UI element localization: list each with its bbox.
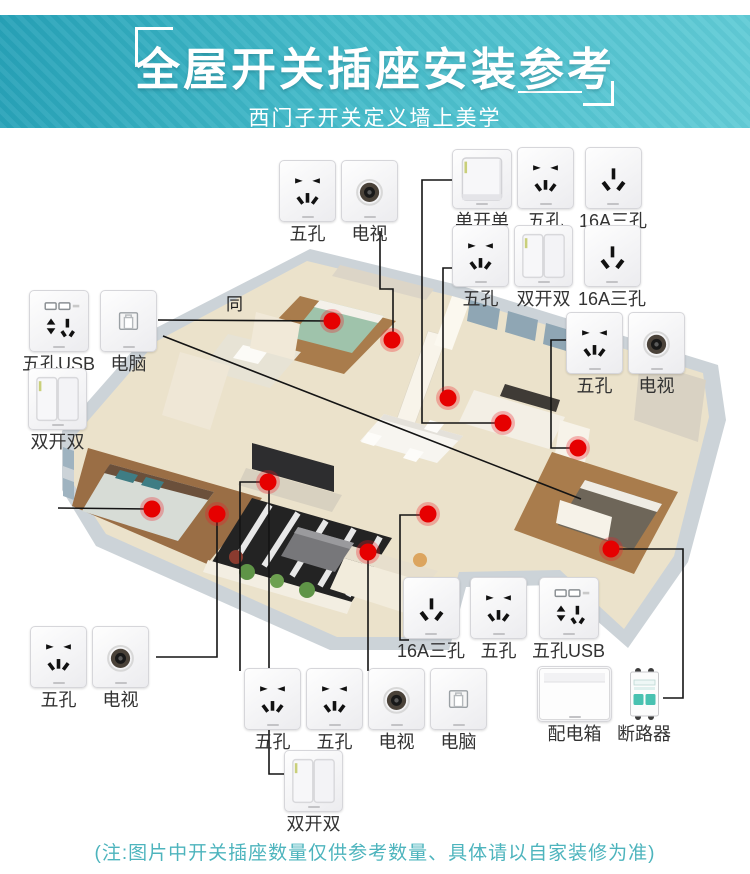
product-group-left-2: 双开双	[28, 368, 87, 452]
tv-product-image	[628, 312, 685, 374]
product-groups-layer: 五孔电视单开单五孔16A三孔五孔双开双16A三孔五孔电视五孔USB电脑双开双五孔…	[0, 0, 750, 874]
product-item: 电视	[341, 160, 398, 244]
double-switch-product-image	[284, 750, 343, 812]
product-item: 双开双	[28, 368, 87, 452]
product-item: 电脑	[430, 668, 487, 752]
product-group-top-left: 五孔电视	[279, 160, 398, 244]
product-item: 16A三孔	[397, 577, 465, 661]
five-hole-product-image	[30, 626, 87, 688]
product-label: 五孔	[577, 376, 613, 396]
three-hole-product-image	[403, 577, 460, 639]
product-item: 五孔	[517, 147, 574, 231]
product-label: 配电箱	[548, 724, 602, 744]
product-label: 16A三孔	[397, 641, 465, 661]
five-usb-product-image	[539, 577, 599, 639]
tv-product-image	[368, 668, 425, 730]
product-group-left-1: 五孔USB电脑	[22, 290, 157, 374]
product-group-top-right-1: 单开单五孔16A三孔	[452, 147, 647, 231]
product-item: 配电箱	[537, 666, 612, 744]
product-label: 电视	[379, 732, 415, 752]
single-switch-product-image	[452, 149, 512, 209]
infographic-page: 全屋开关插座安装参考 西门子开关定义墙上美学	[0, 0, 750, 874]
product-item: 五孔	[452, 225, 509, 309]
product-label: 五孔	[317, 732, 353, 752]
product-label: 五孔	[481, 641, 517, 661]
product-group-bottom-right: 配电箱断路器	[537, 666, 671, 744]
product-item: 电视	[628, 312, 685, 396]
product-item: 双开双	[284, 750, 343, 834]
tv-product-image	[92, 626, 149, 688]
product-label: 五孔USB	[532, 641, 605, 661]
dist-box-product-image	[537, 666, 612, 722]
double-switch-product-image	[28, 368, 87, 430]
product-label: 五孔	[255, 732, 291, 752]
computer-product-image	[430, 668, 487, 730]
product-label: 电脑	[111, 354, 147, 374]
product-item: 五孔	[279, 160, 336, 244]
footnote: (注:图片中开关插座数量仅供参考数量、具体请以自家装修为准)	[0, 838, 750, 865]
five-hole-product-image	[279, 160, 336, 222]
product-item: 双开双	[514, 225, 573, 309]
product-item: 五孔USB	[22, 290, 95, 374]
product-item: 五孔	[470, 577, 527, 661]
product-label: 电视	[352, 224, 388, 244]
product-item: 电视	[368, 668, 425, 752]
product-item: 16A三孔	[578, 225, 646, 309]
product-label: 双开双	[287, 814, 341, 834]
breaker-product-image	[629, 666, 660, 722]
five-hole-product-image	[306, 668, 363, 730]
product-label: 五孔	[41, 690, 77, 710]
product-label: 电视	[103, 690, 139, 710]
tv-product-image	[341, 160, 398, 222]
product-item: 断路器	[617, 666, 671, 744]
five-hole-product-image	[566, 312, 623, 374]
product-item: 16A三孔	[579, 147, 647, 231]
product-item: 五孔	[566, 312, 623, 396]
five-hole-product-image	[452, 225, 509, 287]
five-hole-product-image	[517, 147, 574, 209]
product-item: 单开单	[452, 149, 512, 231]
product-group-right-3: 五孔电视	[566, 312, 685, 396]
product-item: 电视	[92, 626, 149, 710]
five-hole-product-image	[244, 668, 301, 730]
three-hole-product-image	[584, 225, 641, 287]
product-group-top-right-2: 五孔双开双16A三孔	[452, 225, 646, 309]
product-label: 电脑	[441, 732, 477, 752]
five-hole-product-image	[470, 577, 527, 639]
product-item: 五孔USB	[532, 577, 605, 661]
product-group-bottom-left: 五孔电视	[30, 626, 149, 710]
product-label: 五孔	[290, 224, 326, 244]
product-item: 五孔	[306, 668, 363, 752]
product-group-bottom-mid-1: 16A三孔五孔五孔USB	[397, 577, 605, 661]
double-switch-product-image	[514, 225, 573, 287]
product-item: 五孔	[30, 626, 87, 710]
five-usb-product-image	[29, 290, 89, 352]
product-group-bottom-mid-2: 五孔五孔电视电脑	[244, 668, 487, 752]
product-label: 五孔	[463, 289, 499, 309]
product-label: 双开双	[517, 289, 571, 309]
product-label: 双开双	[31, 432, 85, 452]
product-label: 断路器	[617, 724, 671, 744]
product-label: 16A三孔	[578, 289, 646, 309]
product-label: 电视	[639, 376, 675, 396]
product-item: 五孔	[244, 668, 301, 752]
computer-product-image	[100, 290, 157, 352]
three-hole-product-image	[585, 147, 642, 209]
product-item: 电脑	[100, 290, 157, 374]
product-group-bottom-switch: 双开双	[284, 750, 343, 834]
